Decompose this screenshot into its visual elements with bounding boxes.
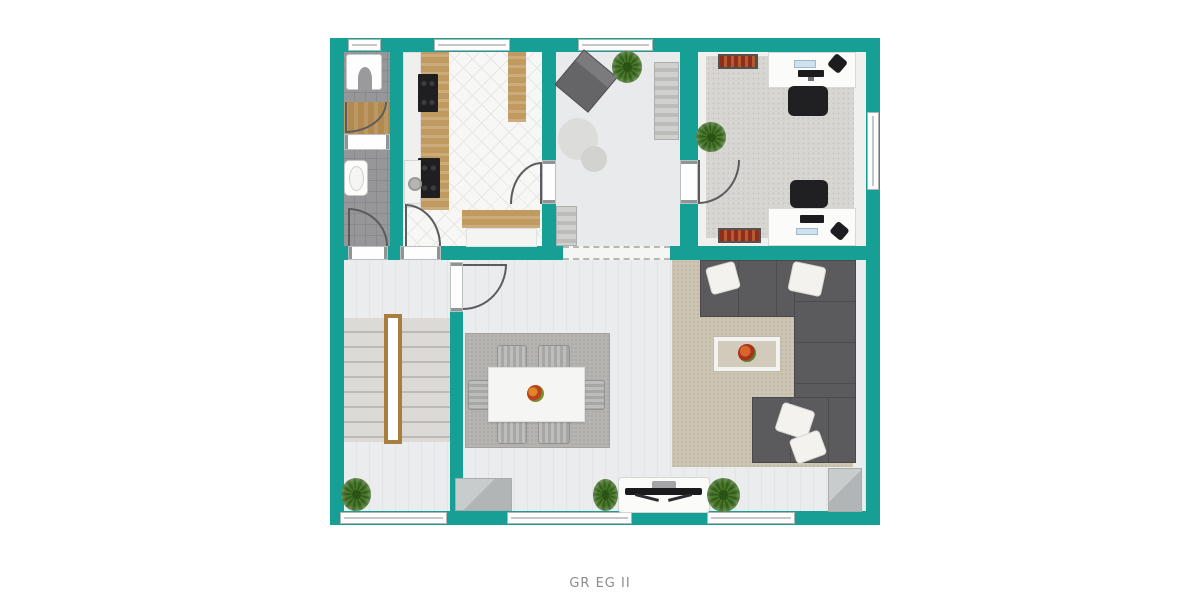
page: { "caption": "GR EG II", "palette": { "w… — [0, 0, 1200, 600]
doormat — [828, 468, 862, 512]
potted-plant — [593, 479, 618, 511]
wall-bath-kitchen — [390, 52, 403, 260]
door-leaf — [348, 208, 350, 246]
fruit-bowl — [527, 385, 544, 402]
dining-chair — [583, 380, 605, 410]
door-sill — [400, 246, 441, 260]
desk-papers — [796, 228, 818, 235]
door-leaf — [345, 102, 347, 133]
stair-handrail — [384, 314, 402, 444]
sink-basin — [349, 166, 364, 191]
door-sill — [344, 134, 390, 150]
potted-plant — [612, 51, 642, 83]
window — [867, 112, 879, 190]
round-rug-small — [581, 146, 607, 172]
potted-plant — [707, 478, 740, 512]
radiator — [718, 54, 758, 69]
outer-wall-left — [330, 38, 344, 525]
door-leaf — [698, 160, 700, 204]
kitchen-tall-cabinet — [508, 52, 526, 122]
desk-papers — [794, 60, 816, 68]
door-sill — [680, 160, 698, 204]
doormat — [455, 478, 512, 511]
office-chair — [790, 180, 828, 208]
window — [507, 512, 632, 524]
wall-mid-d — [670, 246, 866, 260]
monitor-stand — [808, 77, 814, 81]
window — [707, 512, 795, 524]
window — [348, 39, 381, 51]
shower — [346, 54, 382, 90]
wall-room-office-upper — [680, 52, 698, 160]
radiator — [718, 228, 761, 243]
shower-opening — [358, 67, 372, 90]
dining-chair — [497, 420, 527, 444]
door-leaf — [405, 204, 407, 246]
office-chair — [788, 86, 828, 116]
striped-runner — [654, 62, 679, 140]
wall-mid-c — [441, 246, 563, 260]
dining-chair — [468, 380, 490, 410]
potted-plant — [696, 122, 726, 152]
dining-chair — [538, 420, 570, 444]
oven — [418, 158, 440, 198]
wall-kitchen-room-upper — [542, 52, 556, 160]
sink — [344, 160, 368, 196]
door-sill — [348, 246, 388, 260]
wall-mid-b — [388, 246, 400, 260]
dining-chair — [497, 345, 527, 369]
floor-plan — [330, 38, 880, 525]
window — [434, 39, 510, 51]
window — [578, 39, 653, 51]
cooktop — [418, 74, 438, 112]
monitor — [800, 215, 824, 223]
door-leaf — [463, 264, 507, 266]
door-sill — [542, 160, 556, 204]
plan-caption: GR EG II — [0, 576, 1200, 591]
striped-mat — [556, 206, 577, 246]
door-sill — [450, 262, 463, 312]
flower-vase — [738, 344, 756, 362]
open-passage-dashed — [563, 246, 670, 260]
door-leaf — [540, 162, 542, 204]
washing-machine — [404, 160, 421, 204]
potted-plant — [341, 478, 371, 511]
dining-chair — [538, 345, 570, 369]
window — [340, 512, 447, 524]
kitchen-island-top — [462, 210, 540, 228]
kitchen-island-base — [466, 228, 537, 247]
monitor — [798, 70, 824, 77]
